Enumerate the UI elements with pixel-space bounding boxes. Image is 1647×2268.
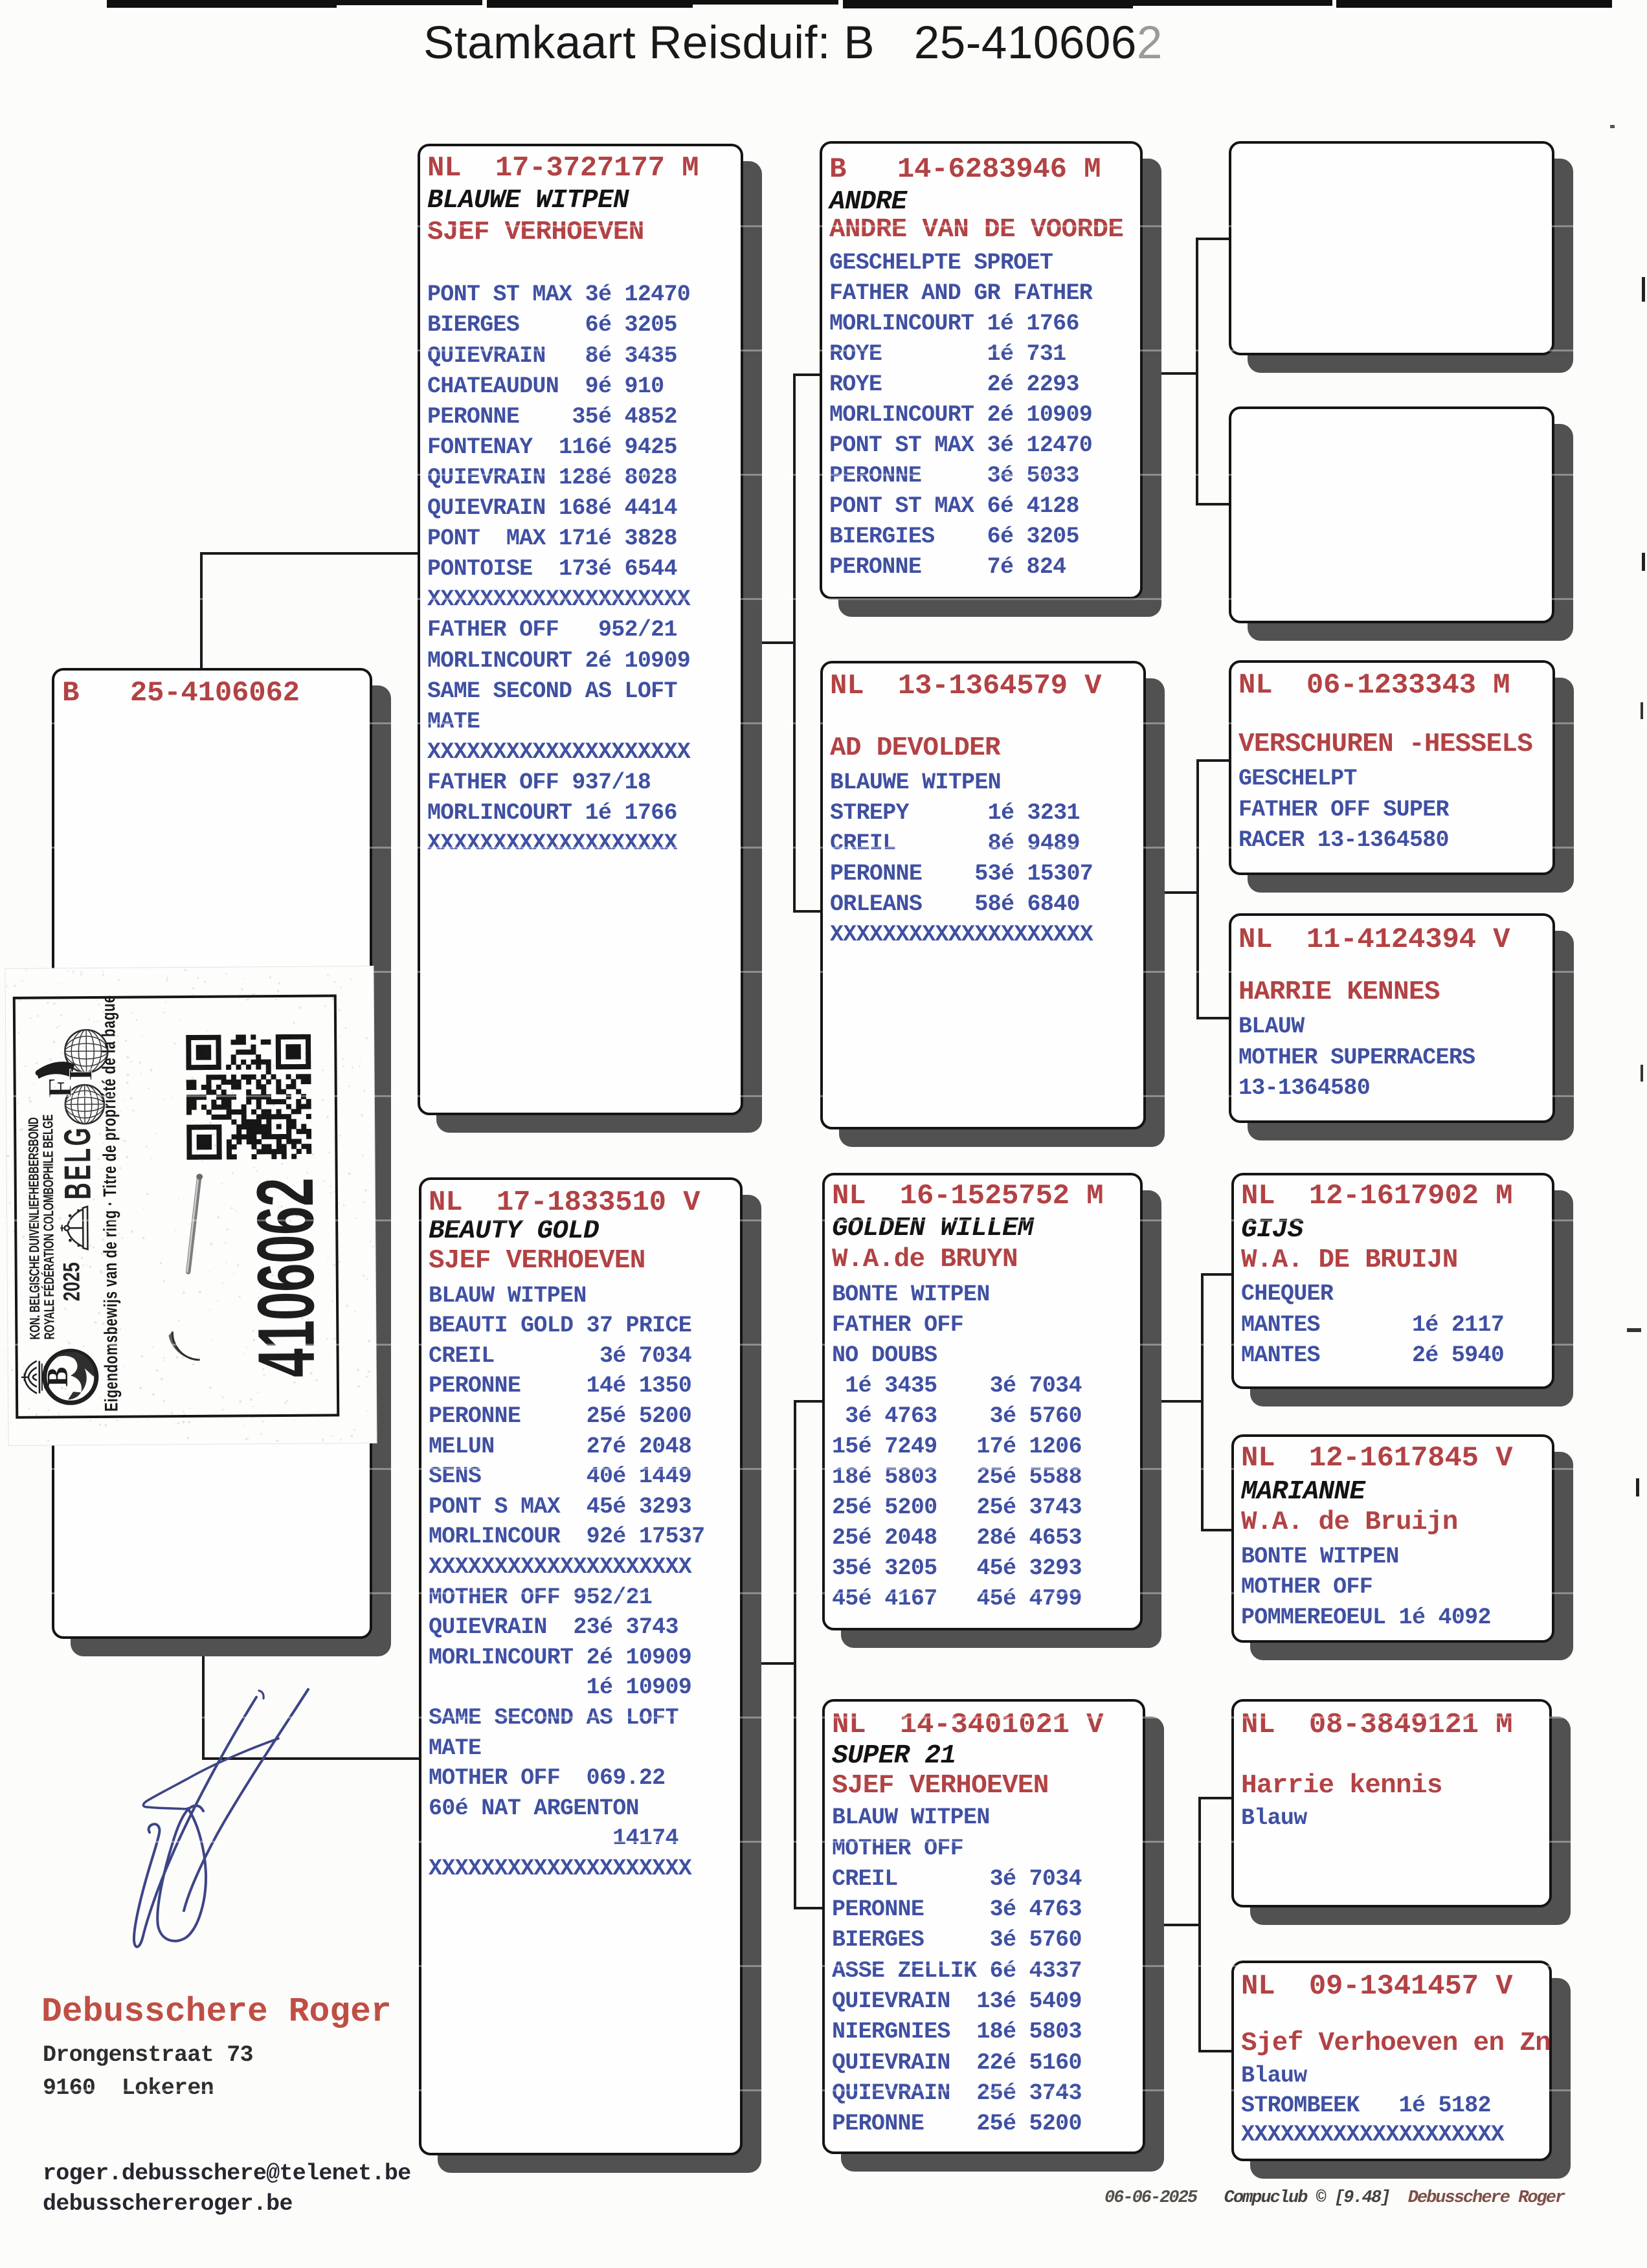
svg-text:I: I [63, 1068, 100, 1082]
svg-text:B: B [41, 1367, 74, 1387]
